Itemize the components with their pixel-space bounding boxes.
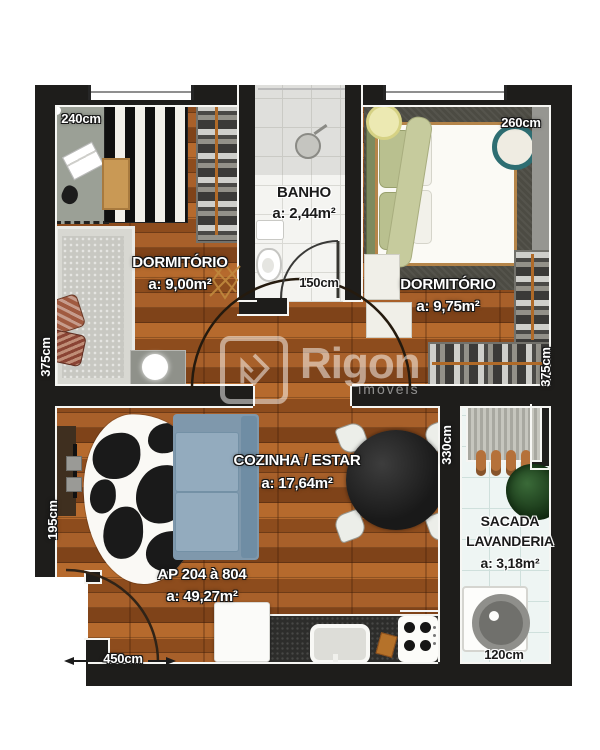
bathroom-sink (256, 220, 284, 240)
washer-hub (489, 611, 499, 621)
wall-bath-right (345, 85, 361, 300)
sacada-name-line2: LAVANDERIA (456, 532, 564, 550)
towel-icon (476, 450, 486, 476)
sacada-area: a: 3,18m² (467, 554, 553, 572)
floor-plan: Rigon imóveis 240cm DORMITÓRIO a: 9,00m²… (0, 0, 600, 750)
wardrobe-rail (215, 107, 218, 235)
banho-width-dim: 150cm (294, 274, 344, 292)
washer-door (472, 594, 530, 652)
sacada-name-line1: SACADA (467, 512, 553, 530)
wall-bottom (86, 664, 572, 686)
watermark-brand: Rigon (300, 343, 420, 385)
living-width-dim: 450cm (94, 650, 152, 668)
banho-area: a: 2,44m² (258, 205, 350, 223)
stove-knob (433, 626, 436, 629)
burner-icon (404, 640, 415, 651)
cozinha-area: a: 17,64m² (242, 475, 352, 493)
burner-icon (420, 640, 431, 651)
stove-icon (398, 616, 438, 662)
refrigerator (214, 602, 270, 662)
burner-icon (420, 622, 431, 633)
cozinha-depth-dim: 330cm (438, 417, 456, 473)
sofa-cushion (175, 432, 239, 492)
shower-area (255, 85, 345, 175)
stove-knob (433, 634, 436, 637)
towel-icon (491, 450, 501, 476)
apartment-unit-label: AP 204 à 804 (142, 566, 262, 584)
dorm1-depth-dim: 375cm (37, 328, 55, 386)
round-dining-table (346, 430, 446, 530)
dorm2-width-dim: 260cm (494, 114, 548, 132)
window-bathroom (258, 88, 345, 90)
toilet-bowl (262, 258, 274, 273)
counter-edge (400, 610, 438, 612)
watermark: Rigon imóveis (220, 334, 480, 406)
side-table (102, 158, 130, 210)
kitchen-sink-icon (310, 624, 370, 664)
exterior-notch (30, 577, 88, 672)
entry-door-hinge-stub (84, 570, 102, 584)
window-bedroom2 (383, 85, 507, 100)
sofa-cushion (175, 492, 239, 552)
wardrobe-rail (531, 254, 534, 340)
burner-icon (404, 622, 415, 633)
speaker-icon (66, 477, 82, 492)
floor-lamp-icon (366, 104, 402, 140)
banho-name: BANHO (262, 184, 346, 202)
dorm2-name: DORMITÓRIO (386, 276, 510, 294)
dorm2-depth-dim: 375cm (537, 338, 555, 396)
watermark-subtitle: imóveis (358, 381, 419, 397)
speaker-icon (66, 456, 82, 471)
stove-knob (433, 642, 436, 645)
dorm1-width-dim: 240cm (56, 110, 106, 128)
cozinha-name: COZINHA / ESTAR (232, 452, 362, 470)
dorm1-name: DORMITÓRIO (118, 254, 242, 272)
sacada-width-dim: 120cm (477, 646, 531, 664)
table-lamp-icon (142, 354, 168, 380)
wardrobe-bedroom1 (196, 103, 242, 243)
living-depth-dim: 195cm (44, 492, 62, 548)
dorm1-area: a: 9,00m² (118, 276, 242, 294)
apartment-area-label: a: 49,27m² (142, 588, 262, 606)
rigon-logo-icon (220, 336, 288, 404)
shower-head-icon (295, 133, 321, 159)
dorm2-area: a: 9,75m² (386, 298, 510, 316)
window-bedroom1 (88, 85, 194, 100)
